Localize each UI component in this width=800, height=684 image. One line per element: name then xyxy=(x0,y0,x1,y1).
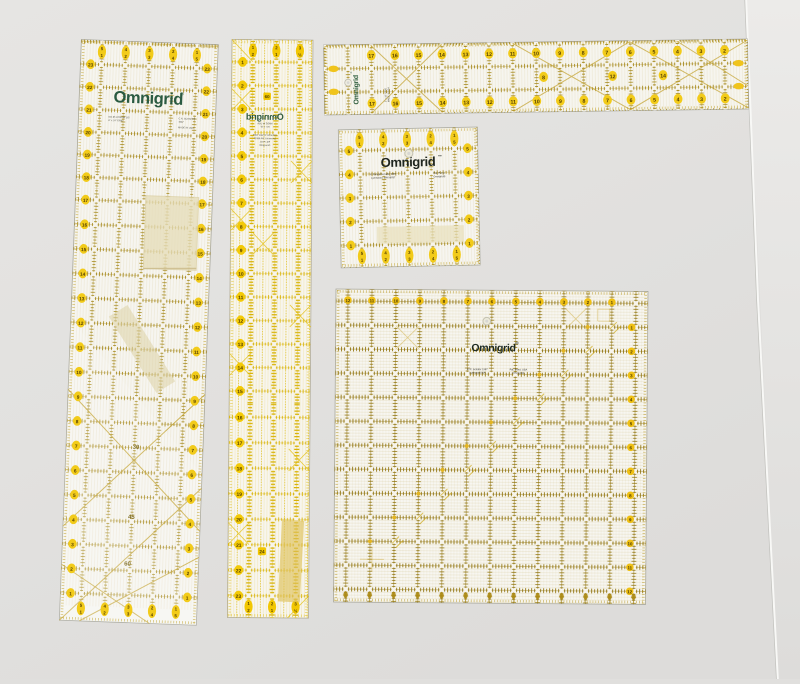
svg-text:MADE IN USA: MADE IN USA xyxy=(387,87,390,102)
svg-text:6: 6 xyxy=(629,50,632,56)
svg-text:15: 15 xyxy=(197,251,203,256)
svg-text:16: 16 xyxy=(82,222,88,227)
svg-text:19: 19 xyxy=(201,157,207,162)
svg-text:17: 17 xyxy=(368,54,374,60)
svg-text:23: 23 xyxy=(236,594,242,600)
svg-text:15: 15 xyxy=(81,247,87,252)
svg-text:23: 23 xyxy=(88,62,94,67)
svg-text:Omnigrid®: Omnigrid® xyxy=(259,144,270,147)
svg-text:13: 13 xyxy=(79,296,85,301)
svg-text:MADE IN USA: MADE IN USA xyxy=(257,122,272,125)
svg-text:Lynnwood WA: Lynnwood WA xyxy=(469,371,485,374)
svg-text:16: 16 xyxy=(198,227,204,232)
svg-text:7: 7 xyxy=(240,201,243,207)
svg-text:20: 20 xyxy=(236,517,242,523)
svg-text:10: 10 xyxy=(534,99,540,105)
svg-text:4: 4 xyxy=(241,131,244,137)
svg-text:8: 8 xyxy=(582,99,585,105)
svg-text:9: 9 xyxy=(240,248,243,254)
svg-text:11: 11 xyxy=(627,565,632,570)
svg-text:13: 13 xyxy=(196,301,202,306)
svg-text:®: ® xyxy=(349,72,353,74)
svg-text:10: 10 xyxy=(238,272,244,278)
svg-text:5: 5 xyxy=(652,50,655,56)
svg-text:11: 11 xyxy=(194,350,200,355)
svg-text:15: 15 xyxy=(237,389,243,395)
svg-text:Lynnwood, WA 98037: Lynnwood, WA 98037 xyxy=(253,137,276,140)
svg-text:15: 15 xyxy=(416,53,422,59)
svg-text:11: 11 xyxy=(510,52,516,58)
svg-text:10: 10 xyxy=(533,51,539,57)
svg-text:24: 24 xyxy=(259,549,265,554)
svg-text:Omnigrid: Omnigrid xyxy=(113,88,183,109)
svg-text:© Randal Schafer 1987: © Randal Schafer 1987 xyxy=(252,134,277,137)
svg-text:4: 4 xyxy=(677,97,680,103)
svg-text:®: ® xyxy=(516,340,519,345)
svg-text:11: 11 xyxy=(77,345,83,350)
svg-text:11: 11 xyxy=(510,100,516,106)
svg-text:10: 10 xyxy=(76,370,82,375)
svg-text:10: 10 xyxy=(628,541,633,546)
svg-text:MADE IN USA: MADE IN USA xyxy=(178,126,194,130)
svg-text:9: 9 xyxy=(559,99,562,105)
svg-text:17: 17 xyxy=(237,441,243,447)
svg-text:3: 3 xyxy=(241,107,244,113)
svg-text:8: 8 xyxy=(240,225,243,231)
svg-text:13: 13 xyxy=(463,52,469,58)
svg-text:1987: 1987 xyxy=(178,121,184,124)
svg-text:Lynnwood, WA 98037: Lynnwood, WA 98037 xyxy=(371,176,396,180)
svg-text:3" x 18" GRID: 3" x 18" GRID xyxy=(385,87,387,102)
svg-text:7: 7 xyxy=(605,50,608,56)
svg-text:14: 14 xyxy=(197,276,203,281)
svg-text:13: 13 xyxy=(238,342,244,348)
svg-text:12: 12 xyxy=(487,100,493,106)
svg-text:12: 12 xyxy=(345,298,350,303)
svg-text:3: 3 xyxy=(699,49,702,55)
svg-text:12: 12 xyxy=(78,321,84,326)
svg-text:11: 11 xyxy=(370,298,375,303)
svg-text:16: 16 xyxy=(393,101,399,107)
svg-text:2: 2 xyxy=(241,84,244,90)
svg-text:12: 12 xyxy=(610,74,616,80)
svg-text:11: 11 xyxy=(238,295,243,301)
svg-text:20: 20 xyxy=(202,135,208,140)
svg-text:12: 12 xyxy=(486,52,492,58)
svg-text:14: 14 xyxy=(237,366,243,372)
svg-text:19: 19 xyxy=(236,492,242,498)
svg-text:Omnigrid®: Omnigrid® xyxy=(512,372,524,375)
svg-text:9: 9 xyxy=(558,51,561,57)
svg-text:17: 17 xyxy=(83,198,89,203)
svg-text:6" x 24" GRID: 6" x 24" GRID xyxy=(108,119,123,123)
svg-text:Omnigrid: Omnigrid xyxy=(471,342,515,354)
svg-text:13: 13 xyxy=(463,100,469,106)
svg-text:12: 12 xyxy=(627,589,632,594)
svg-text:17: 17 xyxy=(199,202,205,207)
svg-text:10: 10 xyxy=(193,374,199,379)
svg-text:4: 4 xyxy=(676,49,679,55)
svg-text:22: 22 xyxy=(204,89,210,94)
svg-text:21: 21 xyxy=(236,543,242,549)
svg-text:21: 21 xyxy=(203,112,209,117)
svg-text:60: 60 xyxy=(265,94,270,99)
svg-text:Pat. Pend.: Pat. Pend. xyxy=(259,141,270,144)
svg-text:12: 12 xyxy=(238,319,244,325)
svg-text:18: 18 xyxy=(84,175,90,180)
svg-text:Omnigrid: Omnigrid xyxy=(353,75,360,105)
svg-text:8: 8 xyxy=(542,75,545,81)
svg-text:16: 16 xyxy=(237,415,243,421)
svg-text:8: 8 xyxy=(582,51,585,57)
svg-text:12: 12 xyxy=(195,325,201,330)
svg-text:15: 15 xyxy=(416,101,422,107)
svg-text:5: 5 xyxy=(240,154,243,160)
svg-text:17: 17 xyxy=(369,102,375,108)
svg-text:18: 18 xyxy=(200,180,206,185)
svg-text:23: 23 xyxy=(204,67,210,72)
svg-text:Omnigrid®: Omnigrid® xyxy=(433,175,445,178)
svg-text:10: 10 xyxy=(393,298,398,303)
svg-text:½: ½ xyxy=(294,608,298,613)
svg-text:3: 3 xyxy=(700,97,703,103)
svg-text:19: 19 xyxy=(85,153,91,158)
svg-text:20: 20 xyxy=(85,130,91,135)
svg-text:6: 6 xyxy=(240,178,243,184)
svg-text:21: 21 xyxy=(86,108,92,113)
svg-text:5: 5 xyxy=(653,98,656,104)
svg-text:22: 22 xyxy=(236,568,242,574)
svg-text:Omnigrid: Omnigrid xyxy=(246,112,284,122)
svg-text:16: 16 xyxy=(392,53,398,59)
svg-text:14: 14 xyxy=(660,73,666,79)
svg-text:14: 14 xyxy=(439,53,445,59)
svg-text:14: 14 xyxy=(440,101,446,107)
svg-text:½: ½ xyxy=(298,52,302,57)
svg-text:2: 2 xyxy=(724,97,727,103)
svg-text:22: 22 xyxy=(87,85,93,90)
svg-text:™: ™ xyxy=(438,154,442,159)
svg-text:18: 18 xyxy=(237,466,243,472)
svg-text:1: 1 xyxy=(241,60,244,66)
svg-text:2: 2 xyxy=(723,49,726,55)
svg-text:7: 7 xyxy=(606,98,609,104)
svg-text:6: 6 xyxy=(630,98,633,104)
svg-text:14: 14 xyxy=(80,272,86,277)
